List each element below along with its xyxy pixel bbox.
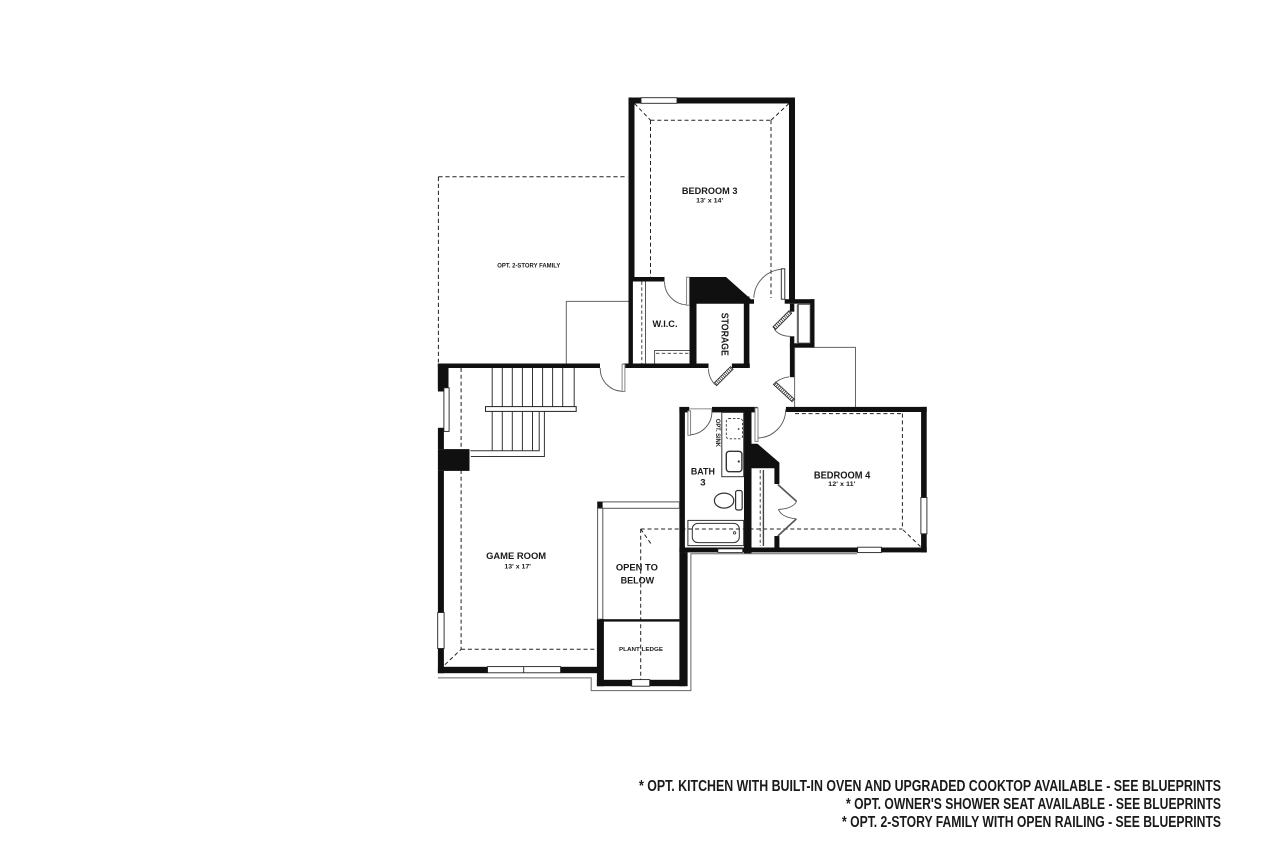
svg-text:PLANT LEDGE: PLANT LEDGE [619, 647, 663, 653]
svg-text:W.I.C.: W.I.C. [653, 319, 678, 329]
svg-text:GAME ROOM: GAME ROOM [486, 551, 546, 561]
svg-text:13' x 14': 13' x 14' [696, 197, 724, 204]
svg-text:BATH: BATH [691, 467, 715, 478]
svg-text:13' x 17': 13' x 17' [504, 564, 531, 571]
svg-text:3: 3 [700, 478, 705, 489]
svg-text:BEDROOM 3: BEDROOM 3 [682, 186, 738, 196]
svg-text:OPEN TO: OPEN TO [616, 563, 658, 573]
svg-text:* OPT. 2-STORY FAMILY WITH OPE: * OPT. 2-STORY FAMILY WITH OPEN RAILING … [842, 814, 1221, 831]
svg-text:* OPT. OWNER'S SHOWER SEAT AVA: * OPT. OWNER'S SHOWER SEAT AVAILABLE - S… [846, 796, 1221, 813]
svg-text:BEDROOM 4: BEDROOM 4 [814, 471, 871, 482]
svg-text:OPT. 2-STORY FAMILY: OPT. 2-STORY FAMILY [497, 264, 560, 270]
svg-text:* OPT. KITCHEN WITH BUILT-IN O: * OPT. KITCHEN WITH BUILT-IN OVEN AND UP… [639, 778, 1221, 795]
svg-text:12' x 11': 12' x 11' [828, 481, 856, 488]
svg-text:STORAGE: STORAGE [719, 313, 730, 356]
svg-text:OPT. SINK: OPT. SINK [714, 419, 721, 447]
svg-text:BELOW: BELOW [621, 575, 655, 585]
